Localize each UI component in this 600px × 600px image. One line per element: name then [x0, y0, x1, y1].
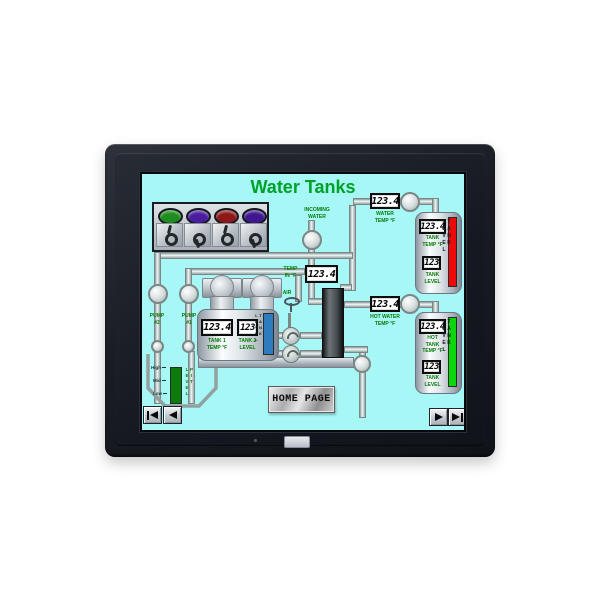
water-temp-label: WATER TEMP °F [368, 211, 402, 224]
tick-mark [162, 367, 166, 368]
tank2-level-label: TANK 2 LEVEL [235, 338, 260, 351]
brand-logo-badge [284, 436, 310, 448]
toggle-base [165, 233, 178, 246]
toggle-switch[interactable] [213, 224, 238, 246]
nav-last-button[interactable] [448, 408, 466, 426]
tank-level-bar [263, 313, 274, 355]
skip-bar-icon [147, 411, 149, 420]
power-led [254, 439, 257, 442]
pipe [300, 332, 322, 339]
arrow-left-icon [169, 411, 177, 419]
heat-exchanger-column [322, 288, 344, 358]
switch-panel [152, 202, 269, 252]
valve [179, 284, 199, 304]
touch-panel-monitor: 123.4 123.4 123.4 123.4 123 123.4 123 12… [105, 144, 495, 457]
arrow-left-icon [150, 411, 158, 419]
temp-in-label: TEMP IN °F [277, 266, 304, 279]
tank1-temp-readout: 123.4 [201, 319, 233, 336]
temp-in-readout: 123.4 [305, 265, 338, 283]
tick-mark [163, 393, 167, 394]
pump-icon [282, 345, 300, 363]
hot-water-temp-label: HOT WATER TEMP °F [364, 314, 406, 327]
pipe [349, 205, 356, 291]
cold-tank-temp-label: TANK TEMP °F [418, 235, 447, 248]
incoming-water-label: INCOMING WATER [294, 207, 340, 220]
nav-first-button[interactable] [143, 406, 162, 424]
pump2-label: PUMP #2 [142, 313, 172, 326]
nav-previous-button[interactable] [163, 406, 182, 424]
pit-scale-label: Low [153, 391, 162, 396]
air-label: AIR [279, 290, 295, 297]
valve [302, 230, 322, 250]
pipe [154, 252, 353, 259]
pipe-joint [182, 340, 195, 353]
valve [148, 284, 168, 304]
valve [353, 355, 371, 373]
page-title: Water Tanks [142, 177, 464, 198]
valve [400, 294, 420, 314]
toggle-base [221, 233, 234, 246]
pit-level-bar [170, 367, 182, 404]
manual-valve-icon [283, 296, 299, 312]
pit-scale-high: High [151, 365, 166, 370]
switch-cell [156, 223, 183, 247]
nav-next-button[interactable] [429, 408, 448, 426]
skip-bar-icon [461, 413, 463, 422]
hot-tank-level-readout: 123 [422, 360, 441, 374]
cold-tank-level-label: TANK LEVEL [418, 272, 447, 285]
pit-side-label: PIT LEVEL [184, 367, 193, 404]
home-page-button[interactable]: HOME PAGE [268, 386, 335, 413]
hot-tank-temp-label: HOT TANK TEMP °F [418, 335, 447, 355]
pipe [154, 252, 161, 286]
pit-scale-label: Mid [153, 378, 161, 383]
hot-water-temp-readout: 123.4 [370, 296, 400, 312]
pit-scale-low: Low [153, 391, 167, 396]
hot-tank-level-label: TANK LEVEL [418, 375, 447, 388]
toggle-switch[interactable] [241, 224, 266, 246]
switch-cell [184, 223, 211, 247]
pump-icon [282, 327, 300, 345]
pipe-joint [151, 340, 164, 353]
switch-cell [212, 223, 239, 247]
cold-tank-level-readout: 123 [422, 256, 441, 270]
pipe [300, 350, 322, 357]
tick-mark [162, 380, 166, 381]
arrow-right-icon [435, 413, 443, 421]
switch-cell [240, 223, 267, 247]
pump1-label: PUMP #1 [174, 313, 204, 326]
pit-scale-label: High [151, 365, 161, 370]
pit-scale-mid: Mid [153, 378, 166, 383]
tank1-temp-label: TANK 1 TEMP °F [199, 338, 235, 351]
arrow-right-icon [452, 413, 460, 421]
toggle-switch[interactable] [185, 224, 210, 246]
toggle-switch[interactable] [157, 224, 182, 246]
hmi-screen: 123.4 123.4 123.4 123.4 123 123.4 123 12… [140, 172, 466, 432]
